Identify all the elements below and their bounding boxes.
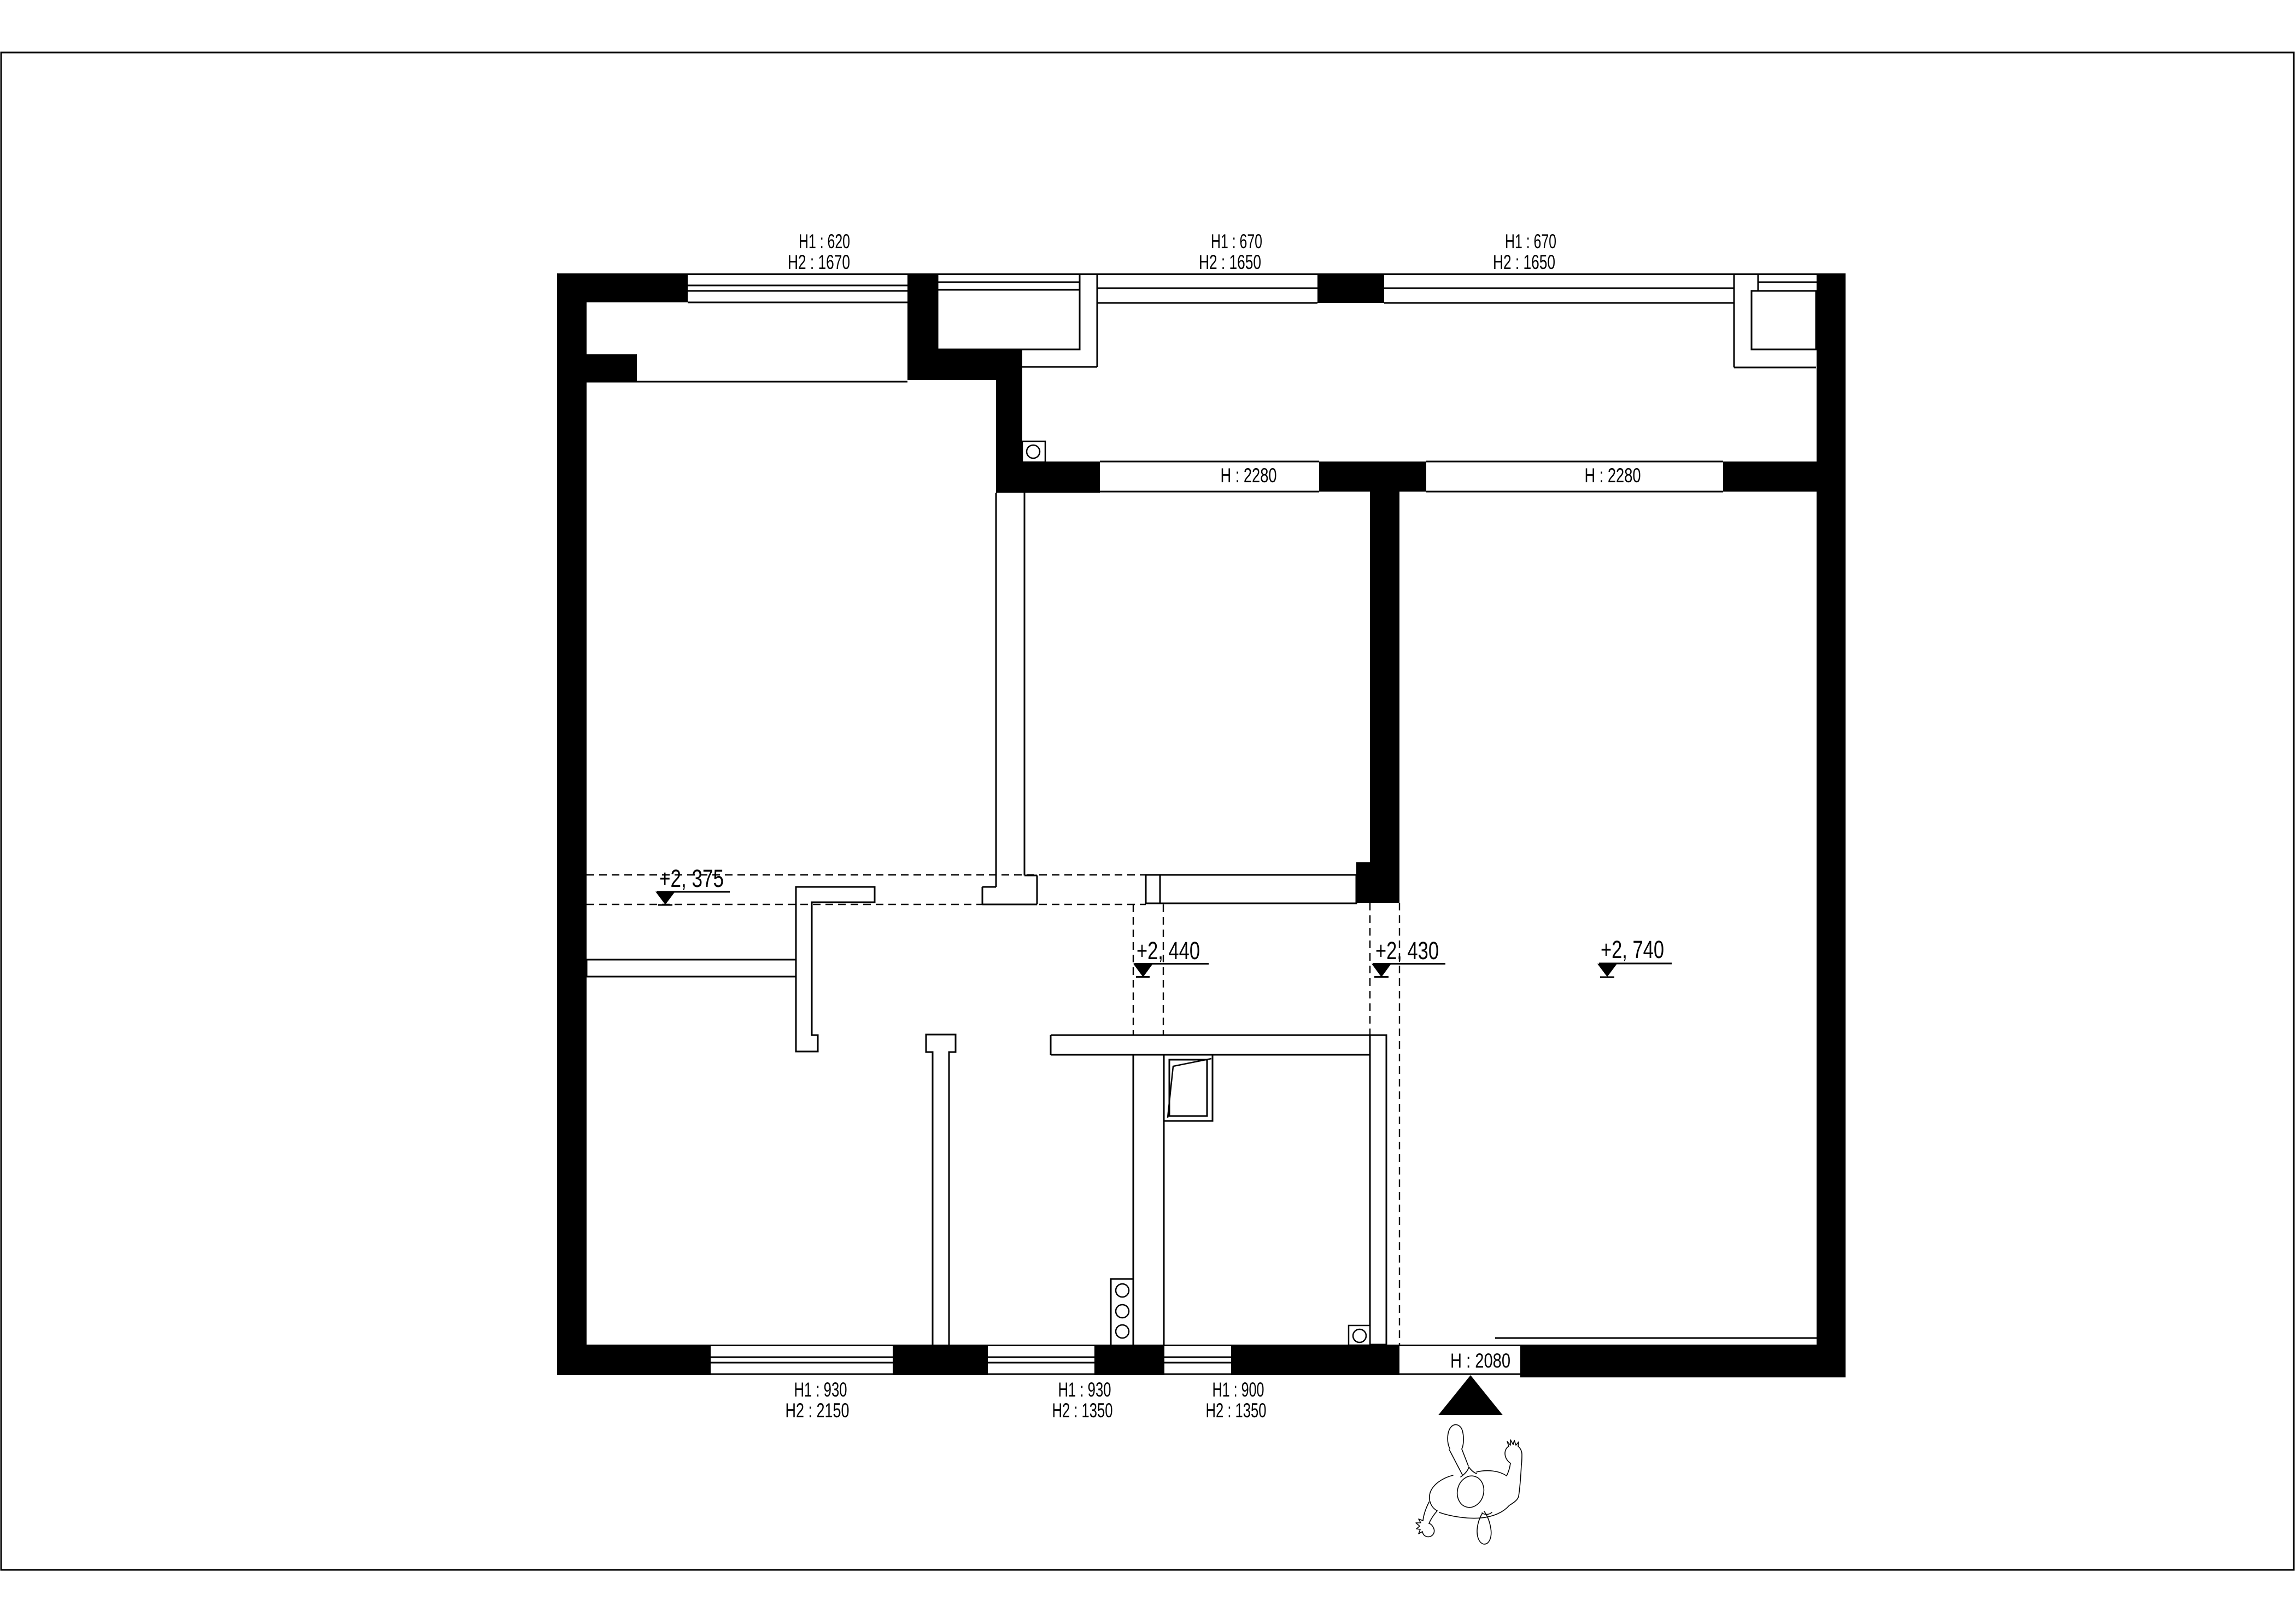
svg-text:H1 : 670: H1 : 670 — [1211, 230, 1262, 253]
svg-text:+2, 740: +2, 740 — [1601, 936, 1664, 963]
svg-text:H1 : 930: H1 : 930 — [1058, 1378, 1111, 1401]
svg-text:H : 2280: H : 2280 — [1221, 464, 1277, 487]
svg-text:H2 : 1350: H2 : 1350 — [1206, 1399, 1267, 1422]
svg-text:H1 : 670: H1 : 670 — [1505, 230, 1556, 253]
svg-text:H2 : 1650: H2 : 1650 — [1493, 250, 1555, 273]
svg-text:+2, 440: +2, 440 — [1137, 937, 1200, 965]
svg-text:H : 2280: H : 2280 — [1585, 464, 1641, 487]
svg-text:H1 : 900: H1 : 900 — [1213, 1378, 1264, 1401]
svg-text:+2, 430: +2, 430 — [1375, 937, 1439, 965]
svg-text:H1 : 620: H1 : 620 — [799, 230, 850, 253]
svg-text:H2 : 2150: H2 : 2150 — [786, 1399, 850, 1422]
svg-text:H1 : 930: H1 : 930 — [794, 1378, 847, 1401]
svg-text:H2 : 1650: H2 : 1650 — [1199, 250, 1261, 273]
svg-text:H2 : 1350: H2 : 1350 — [1052, 1399, 1113, 1422]
svg-text:H : 2080: H : 2080 — [1450, 1349, 1510, 1372]
svg-text:+2, 375: +2, 375 — [659, 864, 724, 892]
svg-text:H2 : 1670: H2 : 1670 — [788, 250, 850, 273]
